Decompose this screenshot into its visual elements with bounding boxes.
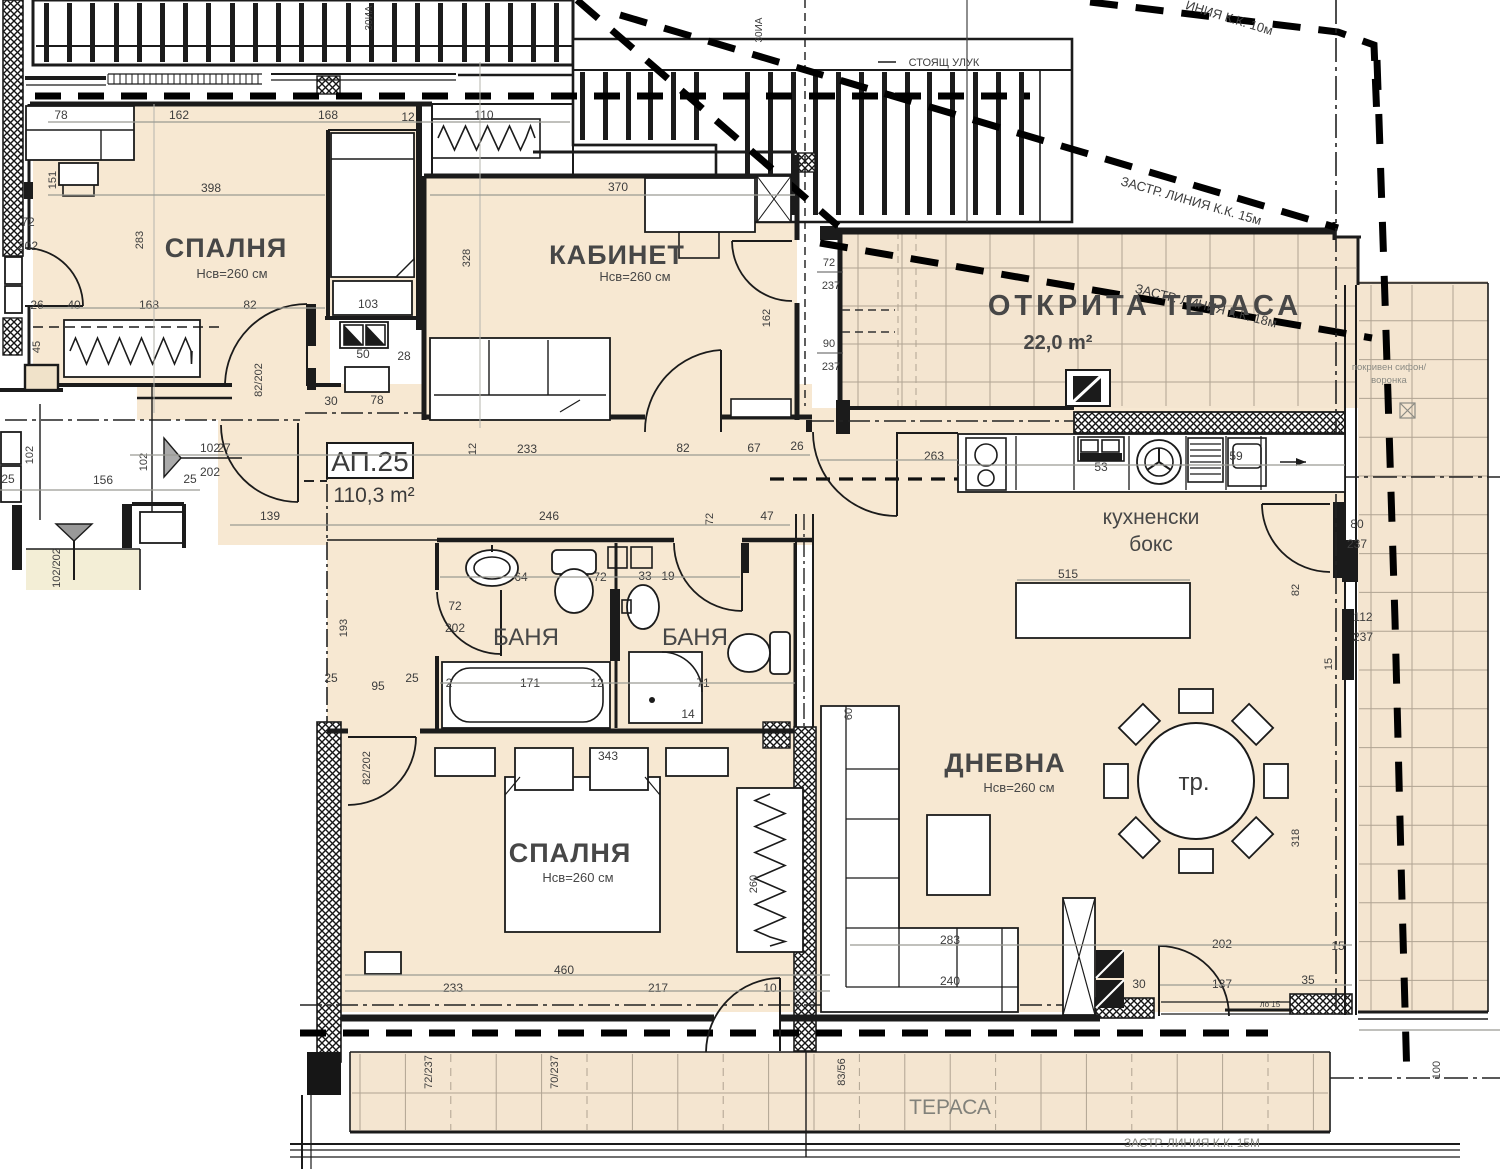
svg-text:Нсв=260 см: Нсв=260 см [542,870,613,885]
svg-text:343: 343 [598,749,618,763]
svg-text:15: 15 [1323,658,1335,670]
svg-text:26: 26 [30,298,44,312]
svg-text:83/56: 83/56 [836,1058,848,1086]
svg-text:40: 40 [67,298,81,312]
svg-text:28: 28 [397,349,411,363]
svg-text:30: 30 [1132,977,1146,991]
svg-text:СТОЯЩ УЛУК: СТОЯЩ УЛУК [909,57,980,69]
svg-text:15: 15 [1331,939,1345,953]
svg-text:АП.25: АП.25 [331,446,408,477]
svg-text:26: 26 [790,439,804,453]
svg-text:50: 50 [356,347,370,361]
svg-text:102/202: 102/202 [51,548,63,588]
svg-text:БАНЯ: БАНЯ [493,624,559,651]
svg-text:139: 139 [260,509,280,523]
svg-text:30ИА: 30ИА [364,5,375,30]
svg-text:47: 47 [760,509,774,523]
svg-text:ЗАСТР. ЛИНИЯ К.К. 15М: ЗАСТР. ЛИНИЯ К.К. 15М [1124,1136,1260,1150]
svg-text:25: 25 [324,671,338,685]
svg-text:237: 237 [822,280,840,292]
svg-text:22,0 m²: 22,0 m² [1024,332,1093,354]
svg-text:283: 283 [134,231,146,249]
svg-text:30: 30 [324,394,338,408]
svg-text:СПАЛНЯ: СПАЛНЯ [165,233,288,263]
svg-text:12: 12 [467,443,479,455]
svg-text:103: 103 [358,297,378,311]
svg-text:90: 90 [823,338,835,350]
svg-text:237: 237 [1347,537,1367,551]
svg-text:82: 82 [1290,584,1302,596]
svg-text:233: 233 [443,981,463,995]
svg-text:202: 202 [1212,937,1232,951]
svg-text:72: 72 [704,513,716,525]
svg-text:202: 202 [200,465,220,479]
svg-text:45: 45 [31,341,43,353]
svg-text:100: 100 [1431,1061,1443,1079]
svg-text:78: 78 [370,393,384,407]
svg-text:25: 25 [405,671,419,685]
svg-text:тр.: тр. [1178,769,1209,796]
svg-text:80: 80 [1350,517,1364,531]
svg-text:82/202: 82/202 [253,363,265,397]
svg-text:318: 318 [1290,829,1302,847]
svg-text:151: 151 [47,171,59,189]
svg-text:156: 156 [93,473,113,487]
svg-text:72: 72 [21,215,35,229]
svg-text:59: 59 [1229,449,1243,463]
svg-text:Нсв=260 см: Нсв=260 см [599,269,670,284]
svg-text:ТЕРАСА: ТЕРАСА [909,1096,991,1119]
svg-text:233: 233 [517,442,537,456]
svg-text:19: 19 [661,569,675,583]
svg-text:ДНЕВНА: ДНЕВНА [944,748,1065,778]
svg-text:воронка: воронка [1371,375,1407,386]
svg-text:240: 240 [940,974,960,988]
svg-text:237: 237 [1353,630,1373,644]
svg-text:246: 246 [539,509,559,523]
svg-text:202: 202 [18,239,38,253]
svg-text:КАБИНЕТ: КАБИНЕТ [549,240,685,270]
svg-text:70/237: 70/237 [549,1055,561,1089]
svg-text:162: 162 [169,108,189,122]
svg-text:260: 260 [748,875,760,893]
svg-text:202: 202 [445,621,465,635]
svg-text:110,3 m²: 110,3 m² [333,484,414,507]
svg-text:328: 328 [461,249,473,267]
svg-text:95: 95 [371,679,385,693]
svg-text:162: 162 [761,309,773,327]
svg-text:Нсв=260 см: Нсв=260 см [983,780,1054,795]
svg-text:бокс: бокс [1129,533,1173,556]
svg-text:покривен сифон/: покривен сифон/ [1352,362,1427,373]
svg-text:217: 217 [648,981,668,995]
svg-text:370: 370 [608,180,628,194]
svg-text:515: 515 [1058,567,1078,581]
svg-text:168: 168 [139,298,159,312]
svg-text:67: 67 [747,441,761,455]
svg-text:СПАЛНЯ: СПАЛНЯ [509,838,632,868]
svg-text:82: 82 [243,298,257,312]
svg-text:137: 137 [1212,977,1232,991]
svg-text:72/237: 72/237 [423,1055,435,1089]
svg-text:398: 398 [201,181,221,195]
svg-text:102: 102 [24,446,36,464]
svg-text:25: 25 [1,472,15,486]
svg-text:102: 102 [200,441,220,455]
svg-text:112: 112 [1353,610,1372,624]
svg-text:82/202: 82/202 [361,751,373,785]
svg-text:72: 72 [448,599,462,613]
svg-text:ОТКРИТА ТЕРАСА: ОТКРИТА ТЕРАСА [988,290,1302,322]
svg-text:33: 33 [638,569,652,583]
svg-text:60: 60 [843,708,855,720]
svg-text:82: 82 [676,441,690,455]
svg-text:237: 237 [822,361,840,373]
svg-text:14: 14 [681,707,695,721]
svg-text:53: 53 [1094,460,1108,474]
svg-text:25: 25 [183,472,197,486]
svg-text:БАНЯ: БАНЯ [662,624,728,651]
svg-text:10: 10 [763,981,777,995]
svg-text:110: 110 [474,108,493,122]
svg-text:193: 193 [338,619,350,637]
svg-text:78: 78 [54,108,68,122]
svg-text:кухненски: кухненски [1103,506,1200,529]
svg-text:72: 72 [823,257,835,269]
svg-text:30ИА: 30ИА [754,17,765,42]
svg-text:263: 263 [924,449,944,463]
svg-text:168: 168 [318,108,338,122]
svg-text:Нсв=260 см: Нсв=260 см [196,266,267,281]
svg-text:ло 15: ло 15 [1260,1000,1281,1009]
